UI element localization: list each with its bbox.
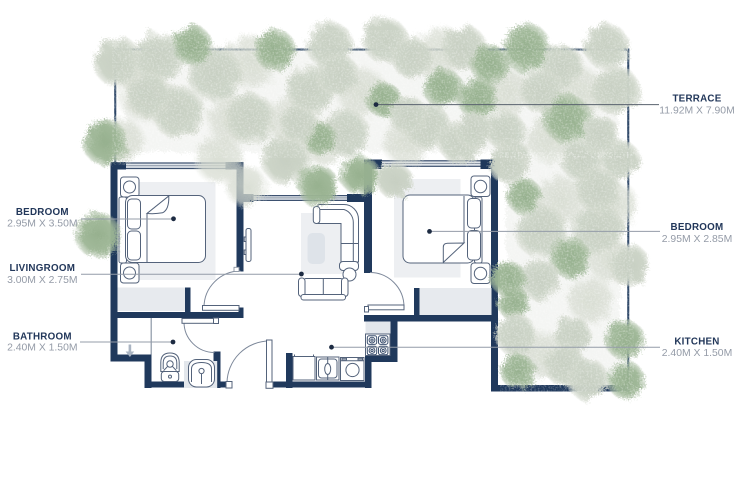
svg-text:BEDROOM: BEDROOM: [671, 222, 724, 233]
svg-text:BATHROOM: BATHROOM: [13, 331, 72, 342]
svg-text:KITCHEN: KITCHEN: [674, 336, 719, 347]
svg-text:TERRACE: TERRACE: [672, 94, 721, 105]
svg-text:2.40M X 1.50M: 2.40M X 1.50M: [662, 348, 732, 359]
svg-text:2.95M X 2.85M: 2.95M X 2.85M: [662, 234, 732, 245]
svg-text:BEDROOM: BEDROOM: [16, 207, 69, 218]
svg-text:2.95M X 3.50M: 2.95M X 3.50M: [7, 219, 77, 230]
svg-text:3.00M X 2.75M: 3.00M X 2.75M: [7, 275, 77, 286]
svg-text:2.40M X 1.50M: 2.40M X 1.50M: [7, 343, 77, 354]
svg-text:11.92M X 7.90M: 11.92M X 7.90M: [659, 105, 734, 116]
svg-text:LIVINGROOM: LIVINGROOM: [9, 263, 75, 274]
